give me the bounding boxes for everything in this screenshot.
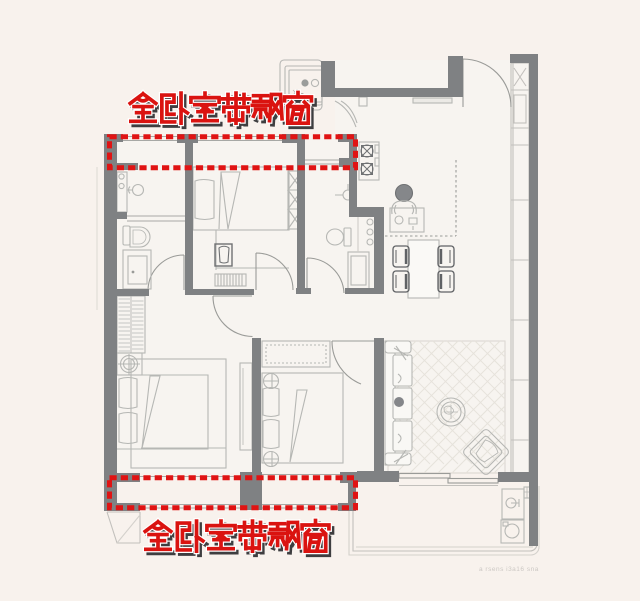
svg-text:a rsens i3a16 sna: a rsens i3a16 sna [479,566,539,573]
